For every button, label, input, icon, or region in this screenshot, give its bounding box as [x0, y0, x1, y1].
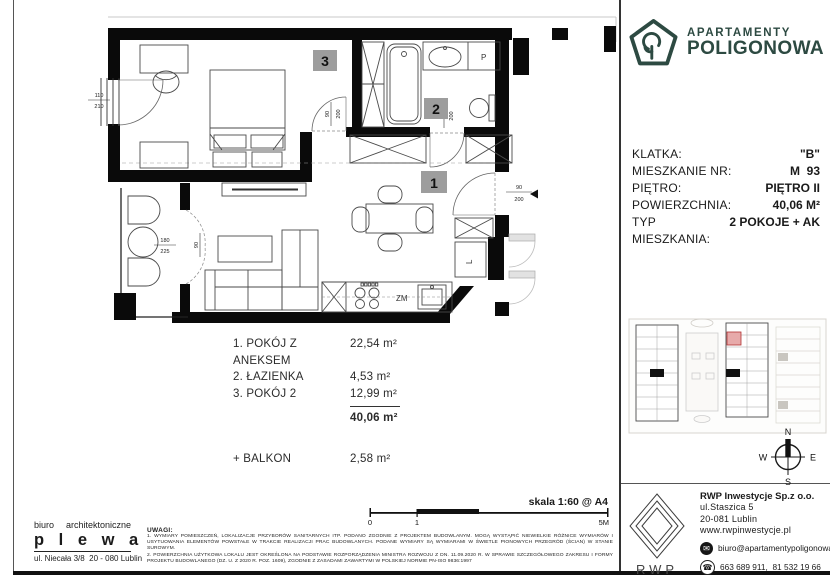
compass-n: N	[785, 427, 792, 437]
email-icon: ✉	[700, 542, 713, 555]
room-name: 3. POKÓJ 2	[233, 386, 350, 403]
developer-company: RWP Inwestycje Sp.z o.o.	[700, 491, 828, 502]
desk	[140, 45, 188, 93]
developer-contact: RWP Inwestycje Sp.z o.o. ul.Staszica 5 2…	[700, 491, 828, 575]
compass-w: W	[759, 453, 768, 463]
compass-s: S	[785, 477, 791, 486]
sofa	[205, 230, 318, 310]
dim-bathroom-door-h: 200	[449, 111, 455, 120]
site-court	[686, 333, 718, 423]
architect-address: ul. Niecała 3/8 20 - 080 Lublin	[34, 554, 131, 563]
architect-subtitle: biuro architektoniczne	[34, 520, 131, 530]
fridge	[455, 242, 486, 277]
developer-logo-text: RWP	[636, 562, 678, 577]
info-label: TYP MIESZKANIA:	[632, 214, 729, 248]
compass-rose: N S W E	[750, 424, 826, 486]
info-value: 2 POKOJE + AK	[729, 214, 820, 248]
dining-table	[352, 186, 433, 251]
total-area: 40,06 m²	[350, 406, 400, 427]
washer-label: P	[481, 53, 486, 62]
developer-logo: RWP	[624, 486, 690, 578]
room-badges: 3 2 1	[313, 50, 448, 193]
dim-window-w: 110	[95, 93, 104, 99]
info-label: MIESZKANIE NR:	[632, 163, 731, 180]
brand-line2: POLIGONOWA	[687, 39, 824, 59]
room-list-item: 2. ŁAZIENKA 4,53 m²	[233, 369, 403, 386]
note-1: 1. WYMIARY POMIESZCZEŃ, LOKALIZACJE PRZY…	[147, 534, 613, 553]
compass-e: E	[810, 453, 816, 463]
neighbor-doors	[509, 234, 535, 304]
dishwasher-label: ZM	[396, 294, 408, 303]
coffee-table	[218, 236, 272, 262]
developer-phone-row: ☎ 663 689 911, 81 532 19 66	[700, 560, 828, 575]
plan-sheet: P ZM L 110 210 180 225 90 90 200 90 200 …	[0, 0, 830, 587]
double-bed	[210, 70, 285, 167]
architect-word2: architektoniczne	[66, 520, 131, 530]
info-label: POWIERZCHNIA:	[632, 197, 731, 214]
notes-title: UWAGI:	[147, 527, 613, 534]
hall-wardrobe-left	[350, 135, 426, 163]
room-list-item: 3. POKÓJ 2 12,99 m²	[233, 386, 403, 403]
room-area: 22,54 m²	[350, 336, 400, 369]
badge-room-1: 1	[430, 175, 438, 191]
floor-plan-drawing: P ZM L 110 210 180 225 90 90 200 90 200 …	[0, 0, 620, 335]
site-plan-minimap	[626, 313, 830, 441]
architect-block: biuro architektoniczne p l e w a ul. Nie…	[34, 520, 131, 563]
badge-room-2: 2	[432, 101, 440, 117]
toilet	[470, 95, 496, 121]
kitchen-counter	[322, 282, 452, 312]
info-value: 40,06 M²	[773, 197, 820, 214]
phone-icon: ☎	[700, 560, 715, 575]
room-name: 1. POKÓJ Z ANEKSEM	[233, 336, 350, 369]
developer-city: 20-081 Lublin	[700, 514, 828, 526]
dim-window-h: 210	[94, 104, 103, 110]
info-row: KLATKA: "B"	[632, 146, 820, 163]
scale-tick-5m: 5M	[599, 518, 609, 527]
entry-cabinet	[455, 218, 493, 238]
room-list: 1. POKÓJ Z ANEKSEM 22,54 m² 2. ŁAZIENKA …	[233, 336, 403, 467]
dim-balcony-leaf: 90	[194, 242, 200, 248]
scale-tick-0: 0	[368, 518, 372, 527]
architect-name: p l e w a	[34, 531, 131, 552]
developer-website: www.rwpinwestycje.pl	[700, 525, 828, 537]
dim-bedroom-door-h: 200	[336, 109, 342, 118]
info-value: PIĘTRO II	[765, 180, 820, 197]
site-building-right	[726, 323, 768, 417]
architect-word1: biuro	[34, 520, 54, 530]
room-list-item: 1. POKÓJ Z ANEKSEM 22,54 m²	[233, 336, 403, 369]
room-name: 2. ŁAZIENKA	[233, 369, 350, 386]
fridge-label: L	[465, 259, 474, 264]
balcony-row: + BALKON 2,58 m²	[233, 451, 403, 468]
site-highlighted-unit	[727, 332, 741, 345]
tall-wardrobe	[362, 42, 384, 127]
bathtub	[387, 44, 421, 124]
dim-balcony-h: 225	[160, 249, 169, 255]
dim-entrance-w: 90	[516, 185, 522, 191]
brand-pentagon-logo-icon	[628, 12, 679, 74]
dim-balcony-w: 180	[160, 238, 169, 244]
room-area: 4,53 m²	[350, 369, 400, 386]
tv-cabinet	[222, 183, 306, 196]
developer-phones: 663 689 911, 81 532 19 66	[720, 562, 821, 572]
developer-street: ul.Staszica 5	[700, 502, 828, 514]
note-2: 2. POWIERZCHNIA UŻYTKOWA LOKALU JEST OKR…	[147, 553, 613, 565]
brand-header: APARTAMENTY POLIGONOWA	[628, 12, 824, 74]
dim-entrance-h: 200	[514, 197, 523, 203]
washbasin	[423, 42, 500, 70]
bedroom-window	[101, 78, 119, 126]
developer-email: biuro@apartamentypoligonowa.pl	[718, 543, 830, 553]
info-row: TYP MIESZKANIA: 2 POKOJE + AK	[632, 214, 820, 248]
balcony-name: + BALKON	[233, 451, 350, 468]
info-value: M 93	[790, 163, 820, 180]
site-building-left	[636, 325, 678, 421]
notes-block: UWAGI: 1. WYMIARY POMIESZCZEŃ, LOKALIZAC…	[147, 527, 613, 565]
info-row: PIĘTRO: PIĘTRO II	[632, 180, 820, 197]
dim-bedroom-door-w: 90	[325, 111, 331, 117]
info-value: "B"	[800, 146, 820, 163]
info-row: POWIERZCHNIA: 40,06 M²	[632, 197, 820, 214]
balcony-area: 2,58 m²	[350, 451, 400, 468]
info-row: MIESZKANIE NR: M 93	[632, 163, 820, 180]
room-total-row: 40,06 m²	[233, 406, 403, 427]
badge-room-3: 3	[321, 53, 329, 69]
scale-bar: 0 1 5M	[366, 506, 612, 528]
info-label: KLATKA:	[632, 146, 682, 163]
dresser	[140, 142, 188, 168]
room-area: 12,99 m²	[350, 386, 400, 403]
info-label: PIĘTRO:	[632, 180, 681, 197]
scale-tick-1: 1	[415, 518, 419, 527]
developer-email-row: ✉ biuro@apartamentypoligonowa.pl	[700, 542, 828, 555]
apartment-info-table: KLATKA: "B" MIESZKANIE NR: M 93 PIĘTRO: …	[632, 146, 820, 248]
